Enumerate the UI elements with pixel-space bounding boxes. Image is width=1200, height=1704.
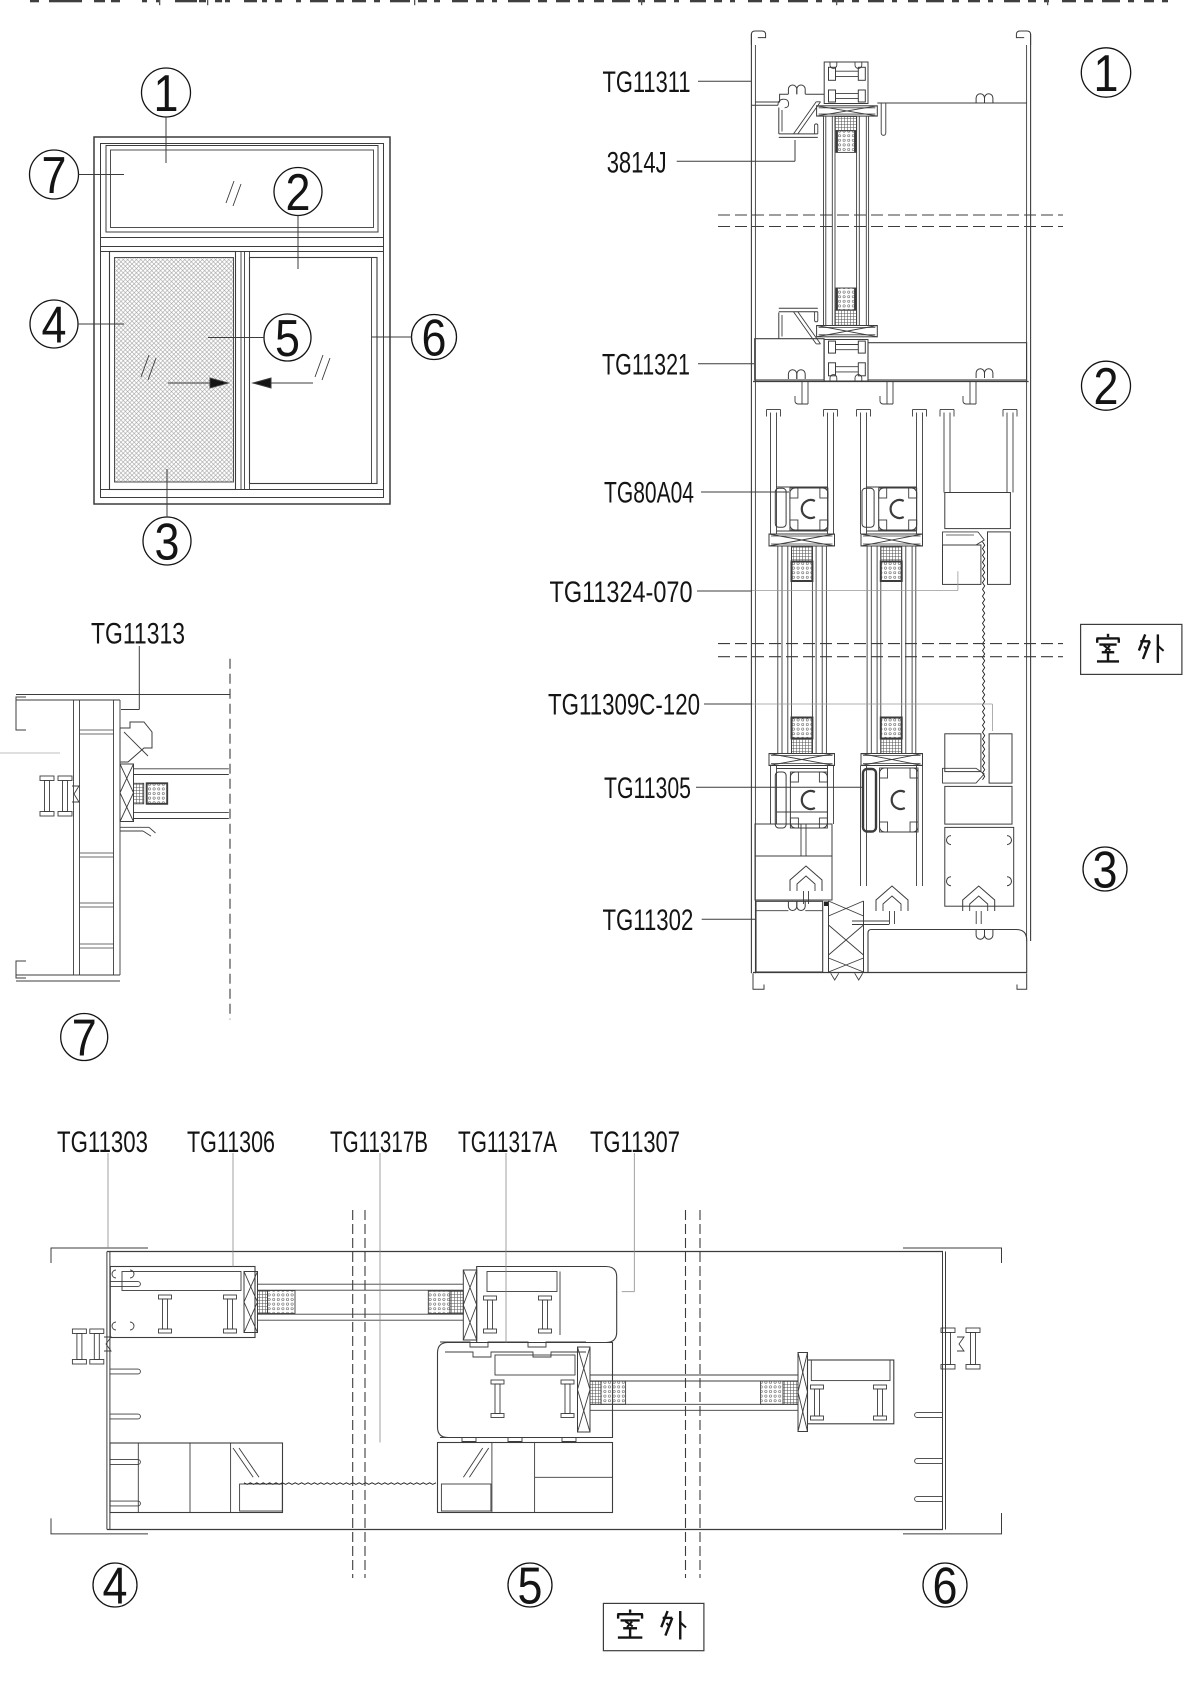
svg-text:5: 5 (518, 1557, 543, 1615)
svg-text:TG11317B: TG11317B (330, 1126, 428, 1159)
svg-text:4: 4 (42, 296, 67, 354)
svg-text:4: 4 (103, 1557, 128, 1615)
svg-text:1: 1 (154, 65, 179, 123)
svg-text:TG11305: TG11305 (604, 772, 691, 805)
svg-text:5: 5 (275, 310, 300, 368)
svg-text:TG11306: TG11306 (187, 1126, 275, 1159)
svg-text:6: 6 (933, 1557, 958, 1615)
svg-text:TG11309C-120: TG11309C-120 (548, 689, 700, 722)
svg-text:2: 2 (1094, 358, 1119, 416)
svg-text:6: 6 (422, 309, 447, 367)
svg-text:3: 3 (155, 513, 180, 571)
svg-text:3: 3 (1093, 841, 1118, 899)
svg-text:TG11311: TG11311 (603, 66, 691, 99)
svg-text:TG11321: TG11321 (602, 348, 690, 381)
svg-text:TG11302: TG11302 (603, 904, 694, 937)
svg-text:TG80A04: TG80A04 (604, 477, 694, 510)
svg-text:2: 2 (286, 164, 311, 222)
svg-text:1: 1 (1094, 45, 1119, 103)
svg-text:3814J: 3814J (607, 146, 667, 179)
svg-text:7: 7 (72, 1009, 97, 1067)
svg-text:TG11303: TG11303 (57, 1126, 148, 1159)
svg-text:7: 7 (42, 147, 67, 205)
svg-text:TG11317A: TG11317A (458, 1126, 557, 1159)
svg-text:TG11313: TG11313 (91, 618, 185, 651)
svg-text:TG11324-070: TG11324-070 (550, 576, 693, 609)
svg-text:TG11307: TG11307 (590, 1126, 680, 1159)
